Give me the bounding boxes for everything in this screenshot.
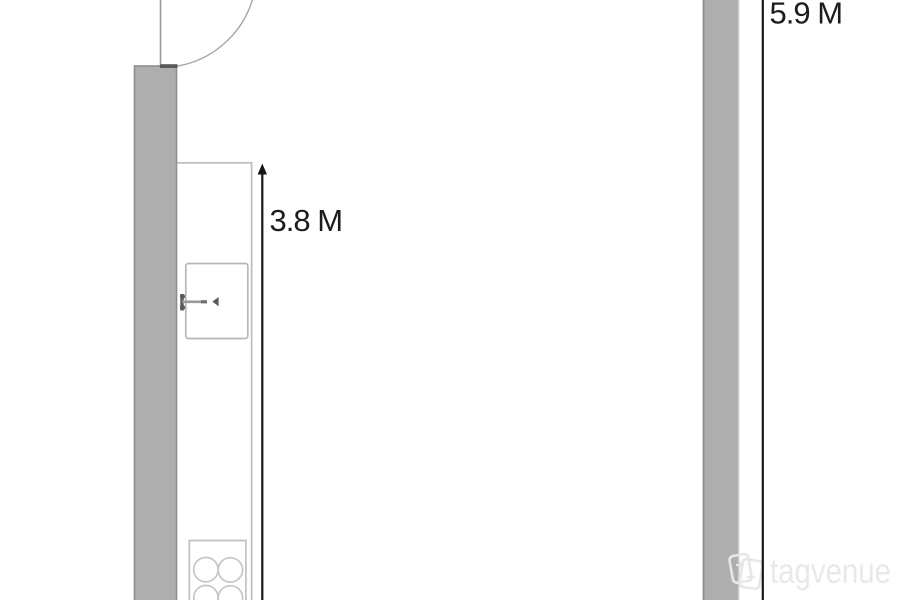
svg-text:3.8 M: 3.8 M [270, 203, 343, 238]
svg-text:tagvenue: tagvenue [770, 552, 891, 591]
svg-text:5.9 M: 5.9 M [770, 0, 843, 30]
